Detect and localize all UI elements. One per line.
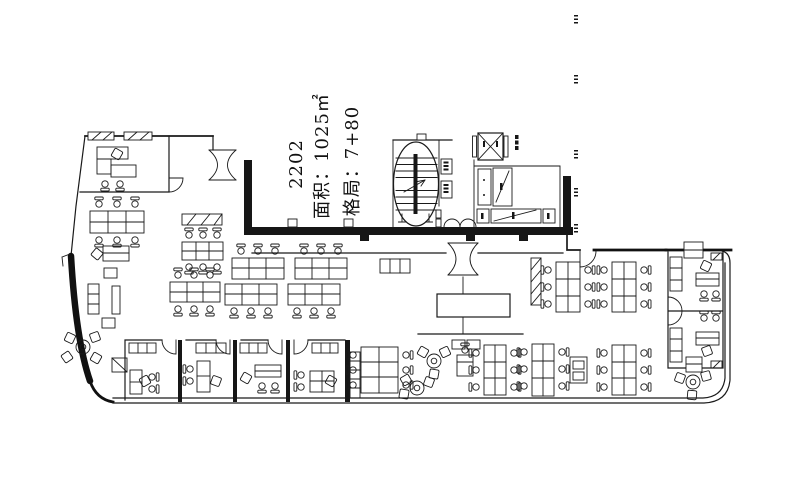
bottom-offices [125,340,360,402]
staircase [393,134,452,227]
grid-tick-marks [574,15,578,233]
desk-cluster-b [182,214,223,274]
floor-plan-canvas: 2202 面积：1025㎡ 格局：7+80 [0,0,789,479]
corner-office [80,132,183,192]
casual-seating [399,340,480,399]
elevator-shaft [473,133,519,160]
outer-walls [62,136,730,403]
washroom-fixtures [474,160,560,227]
desk-cluster-c [170,268,220,316]
unit-number-label: 2202 [286,139,307,189]
top-double-door [209,150,236,180]
desk-cluster-k [346,347,413,393]
desk-cluster-j [597,345,651,395]
desk-cluster-a [90,197,144,247]
desk-cluster-d [225,244,347,318]
desk-cluster-h [469,345,521,395]
desk-cluster-i [517,344,569,396]
reception-table [437,294,510,317]
area-label: 面积：1025㎡ [311,93,333,219]
core-walls [244,160,666,253]
desk-cluster-g [597,262,651,312]
right-offices [666,242,731,400]
office-entry-door [580,250,596,267]
printer-station [570,357,587,383]
layout-label: 格局：7+80 [342,106,363,216]
floor-plan-page: 2202 面积：1025㎡ 格局：7+80 [0,0,789,479]
plan-labels: 2202 面积：1025㎡ 格局：7+80 [286,93,363,219]
